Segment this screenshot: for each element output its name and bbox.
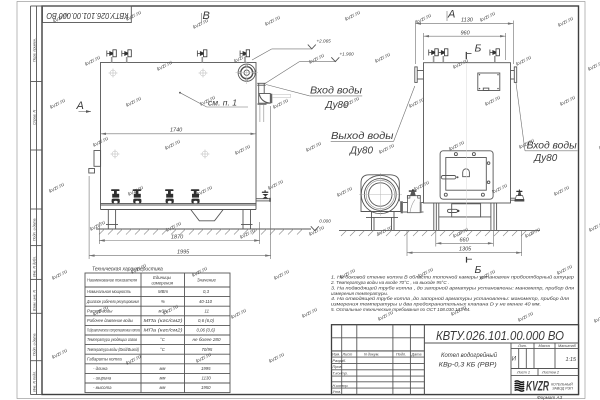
svg-text:70/95: 70/95 <box>202 347 213 352</box>
svg-text:Лист 1: Лист 1 <box>516 371 530 375</box>
svg-text:Дата: Дата <box>411 353 422 357</box>
svg-text:- высота: - высота <box>93 385 112 390</box>
svg-text:0,3: 0,3 <box>203 289 210 294</box>
svg-text:мм: мм <box>160 376 166 381</box>
svg-text:м3/ч: м3/ч <box>159 308 169 313</box>
svg-text:Температура уходящих газов: Температура уходящих газов <box>87 337 138 342</box>
svg-text:1305: 1305 <box>459 247 472 253</box>
svg-text:Подп. и дата: Подп. и дата <box>32 219 36 242</box>
svg-text:11: 11 <box>205 308 210 313</box>
svg-text:Масса: Масса <box>539 344 550 348</box>
svg-text:1130: 1130 <box>202 376 212 381</box>
svg-text:мм: мм <box>160 385 166 390</box>
svg-text:Наименование показателя: Наименование показателя <box>87 278 138 283</box>
svg-text:КВТУ.026.101.00.000 ВО: КВТУ.026.101.00.000 ВО <box>436 328 564 343</box>
svg-text:Справ. N: Справ. N <box>32 110 36 125</box>
svg-text:Подп. и дата: Подп. и дата <box>32 334 36 357</box>
svg-text:%: % <box>161 299 165 304</box>
svg-text:Котел водогрейный: Котел водогрейный <box>441 351 497 359</box>
svg-text:мм: мм <box>160 366 166 371</box>
svg-text:Инв. N подл.: Инв. N подл. <box>32 371 36 392</box>
svg-text:Диапазон рабочего регулировани: Диапазон рабочего регулирования <box>86 299 139 304</box>
svg-text:Листов 2: Листов 2 <box>541 371 560 375</box>
svg-text:Рабочее давление воды: Рабочее давление воды <box>87 318 134 323</box>
svg-text:В: В <box>203 10 210 22</box>
svg-text:Единицы: Единицы <box>153 275 172 280</box>
svg-text:960: 960 <box>461 30 471 36</box>
svg-text:Гидравлическое сопротивление к: Гидравлическое сопротивление котла <box>87 328 140 333</box>
svg-text:Разраб.: Разраб. <box>333 359 347 363</box>
svg-text:Лит.: Лит. <box>517 344 527 348</box>
svg-text:1870: 1870 <box>171 235 184 241</box>
svg-text:А: А <box>447 9 455 21</box>
svg-text:Утв.: Утв. <box>333 390 342 394</box>
svg-text:Техническая характеристика: Техническая характеристика <box>92 267 163 273</box>
svg-text:Габариты котла: Габариты котла <box>87 356 122 361</box>
svg-text:Лист: Лист <box>342 353 353 357</box>
svg-text:Взам. инв. N: Взам. инв. N <box>32 290 36 311</box>
svg-text:см. п. 1: см. п. 1 <box>208 98 237 108</box>
svg-text:1130: 1130 <box>461 18 474 24</box>
svg-text:1:15: 1:15 <box>566 357 577 363</box>
svg-text:Формат А3: Формат А3 <box>537 395 563 400</box>
svg-text:5. Остальные технические треб: 5. Остальные технические требования по О… <box>331 307 471 312</box>
svg-text:1. На боковой стенке котла В: 1. На боковой стенке котла В области топ… <box>331 274 575 280</box>
svg-text:4. На отводящей трубе котла ,: 4. На отводящей трубе котла ,до запорной… <box>331 295 570 301</box>
svg-text:1995: 1995 <box>201 366 211 371</box>
svg-text:МПа (кгс/см2): МПа (кгс/см2) <box>144 328 184 333</box>
svg-text:2. Температура воды на входе: 2. Температура воды на входе 70°С , на в… <box>330 280 449 285</box>
svg-text:Вход воды: Вход воды <box>527 141 578 152</box>
svg-text:Ду80: Ду80 <box>533 153 557 164</box>
svg-text:измерения: измерения <box>152 281 174 286</box>
svg-text:ЗАВОД РЭП: ЗАВОД РЭП <box>552 387 573 391</box>
svg-text:Пров.: Пров. <box>333 365 343 369</box>
svg-text:1740: 1740 <box>170 128 183 134</box>
svg-text:Перв. примен.: Перв. примен. <box>32 38 36 62</box>
svg-text:Т.контр.: Т.контр. <box>333 372 348 376</box>
svg-text:А: А <box>76 100 84 112</box>
svg-text:Выход воды: Выход воды <box>331 131 394 142</box>
svg-text:+1.900: +1.900 <box>340 51 355 56</box>
svg-text:Изм.: Изм. <box>332 353 340 357</box>
svg-text:КВТУ.026.101.00.000 ВО: КВТУ.026.101.00.000 ВО <box>46 11 129 20</box>
svg-text:КВр-0,3 КБ (РВР): КВр-0,3 КБ (РВР) <box>439 361 497 368</box>
svg-text:измерения температуры и два пр: измерения температуры и два предохраните… <box>331 302 541 307</box>
svg-text:- ширина: - ширина <box>93 376 112 381</box>
svg-text:Вход воды: Вход воды <box>310 86 363 97</box>
svg-text:Б: Б <box>475 43 482 55</box>
svg-text:+2.065: +2.065 <box>317 39 332 44</box>
svg-text:Подп.: Подп. <box>396 353 406 357</box>
svg-text:МПа (кгс/см2): МПа (кгс/см2) <box>144 318 184 323</box>
svg-text:N докум.: N докум. <box>364 353 379 357</box>
svg-text:0,6 (6,0): 0,6 (6,0) <box>198 318 215 323</box>
svg-text:Ду80: Ду80 <box>325 100 349 111</box>
svg-text:KVZR: KVZR <box>526 379 549 394</box>
svg-text:0,06 (0,6): 0,06 (0,6) <box>197 328 216 333</box>
svg-text:Номинальная мощность: Номинальная мощность <box>87 289 132 294</box>
svg-text:3. На подводящей трубе котла: 3. На подводящей трубе котла , до запорн… <box>331 284 575 290</box>
svg-text:660: 660 <box>460 237 470 243</box>
svg-text:0.000: 0.000 <box>319 218 331 223</box>
svg-text:40-110: 40-110 <box>199 299 213 304</box>
svg-text:Инв. N дубл.: Инв. N дубл. <box>32 256 36 277</box>
svg-text:Н.контр.: Н.контр. <box>333 384 349 388</box>
svg-text:И: И <box>512 357 517 363</box>
svg-text:Температура воды (Вход/Выход): Температура воды (Вход/Выход) <box>87 347 139 352</box>
svg-text:измерения температуры.: измерения температуры. <box>331 291 388 296</box>
svg-text:1995: 1995 <box>177 249 190 255</box>
svg-text:- длина: - длина <box>93 366 108 371</box>
svg-text:Масштаб: Масштаб <box>558 344 577 348</box>
svg-text:не более 280: не более 280 <box>193 337 222 342</box>
svg-text:Значение: Значение <box>197 278 216 283</box>
svg-text:Ду80: Ду80 <box>349 146 373 157</box>
svg-text:МВт: МВт <box>158 289 168 294</box>
svg-text:1950: 1950 <box>201 385 211 390</box>
svg-text:Расход воды: Расход воды <box>87 308 113 313</box>
